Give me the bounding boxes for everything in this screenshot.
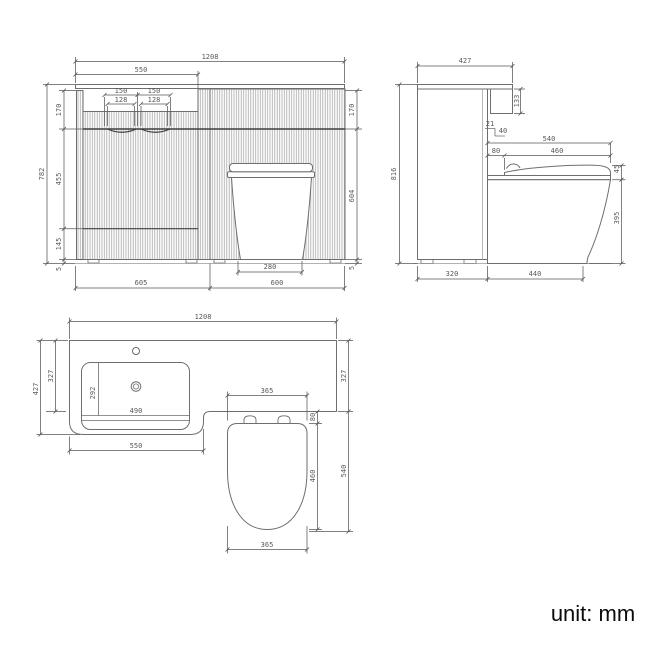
dim-front-toilet-base-width: 280 bbox=[264, 263, 277, 271]
dim-side-fascia-height: 133 bbox=[513, 95, 521, 108]
dim-top-seat-width-bottom: 365 bbox=[261, 541, 274, 549]
dim-top-seat-length: 460 bbox=[309, 470, 317, 483]
dim-top-toilet-overall-length: 540 bbox=[340, 465, 348, 478]
dim-side-toilet-projection: 440 bbox=[529, 270, 542, 278]
dim-front-right-plinth-gap: 5 bbox=[348, 266, 356, 270]
side-view-drawing bbox=[414, 85, 612, 264]
technical-drawing-canvas: 1208 550 150 150 128 128 782 170 455 145… bbox=[0, 0, 650, 650]
dim-top-basin-section-width: 550 bbox=[130, 442, 143, 450]
side-cabinet bbox=[418, 89, 488, 260]
front-toilet-seat bbox=[230, 164, 313, 172]
dim-side-overall-height: 816 bbox=[390, 168, 398, 181]
unit-note: unit: mm bbox=[551, 601, 635, 627]
dim-side-step-drop: 40 bbox=[499, 127, 507, 135]
dim-side-seat-setback: 80 bbox=[492, 147, 500, 155]
dim-side-seat-thickness: 45 bbox=[613, 165, 621, 173]
dim-top-seat-width: 365 bbox=[261, 387, 274, 395]
top-basin bbox=[82, 363, 190, 430]
top-view-dimensions bbox=[37, 318, 354, 554]
dim-top-basin-inner-depth: 292 bbox=[89, 387, 97, 400]
top-overflow-outer bbox=[131, 382, 141, 392]
top-dimension-lines bbox=[41, 322, 349, 550]
dim-top-hinge-setback: 80 bbox=[309, 413, 317, 421]
side-toilet-rim bbox=[488, 176, 611, 180]
drawing-linework bbox=[0, 0, 650, 650]
front-plinth-feet bbox=[88, 260, 341, 264]
dim-side-step-depth: 21 bbox=[486, 120, 494, 128]
dim-front-handle-span-right: 150 bbox=[148, 87, 161, 95]
dim-front-right-top-height: 170 bbox=[348, 104, 356, 117]
side-toilet-seat bbox=[505, 165, 611, 175]
top-dimension-ticks bbox=[39, 320, 351, 552]
dim-front-handle-span-left: 150 bbox=[115, 87, 128, 95]
dim-side-toilet-depth: 540 bbox=[543, 135, 556, 143]
side-fascia-panel bbox=[491, 89, 513, 114]
front-toilet-pedestal bbox=[232, 178, 312, 260]
top-overflow-inner bbox=[133, 384, 138, 389]
dim-front-left-middle-height: 455 bbox=[55, 173, 63, 186]
dim-front-right-lower-height: 604 bbox=[348, 190, 356, 203]
dim-side-seat-length: 460 bbox=[551, 147, 564, 155]
side-plinth-feet bbox=[421, 260, 476, 264]
dim-front-handle-cutout-right: 128 bbox=[148, 96, 161, 104]
front-middle-filler-panel bbox=[198, 89, 210, 260]
side-toilet-bowl bbox=[488, 180, 611, 264]
front-left-side-strip bbox=[77, 91, 84, 260]
dim-front-bottom-right-width: 600 bbox=[271, 279, 284, 287]
top-toilet-seat bbox=[228, 424, 308, 530]
top-extension-lines bbox=[37, 318, 354, 554]
top-view-drawing bbox=[70, 341, 337, 530]
front-toilet-rim bbox=[228, 172, 315, 178]
dim-side-pan-height: 395 bbox=[613, 212, 621, 225]
top-seat-hinges bbox=[244, 416, 290, 424]
top-tap-hole bbox=[133, 348, 140, 355]
dim-top-overall-width: 1208 bbox=[195, 313, 212, 321]
front-view-drawing bbox=[75, 85, 345, 264]
dim-front-handle-cutout-left: 128 bbox=[115, 96, 128, 104]
dim-top-basin-inner-width: 490 bbox=[130, 407, 143, 415]
dim-front-overall-width: 1208 bbox=[202, 53, 219, 61]
dim-side-overall-depth: 427 bbox=[459, 57, 472, 65]
dim-front-overall-height: 782 bbox=[38, 168, 46, 181]
dim-top-counter-depth-right: 327 bbox=[340, 370, 348, 383]
front-basin-section-panel bbox=[83, 112, 198, 260]
dim-front-left-plinth-gap: 5 bbox=[55, 267, 63, 271]
dim-front-left-bottom-height: 145 bbox=[55, 238, 63, 251]
dim-top-overall-depth: 427 bbox=[32, 383, 40, 396]
side-seat-hinge bbox=[507, 164, 521, 169]
dim-top-counter-depth-left: 327 bbox=[47, 370, 55, 383]
side-countertop bbox=[418, 85, 513, 90]
dim-front-basin-section: 550 bbox=[135, 66, 148, 74]
dim-side-cabinet-depth: 320 bbox=[446, 270, 459, 278]
dim-front-left-top-height: 170 bbox=[55, 104, 63, 117]
dim-front-bottom-left-width: 605 bbox=[135, 279, 148, 287]
